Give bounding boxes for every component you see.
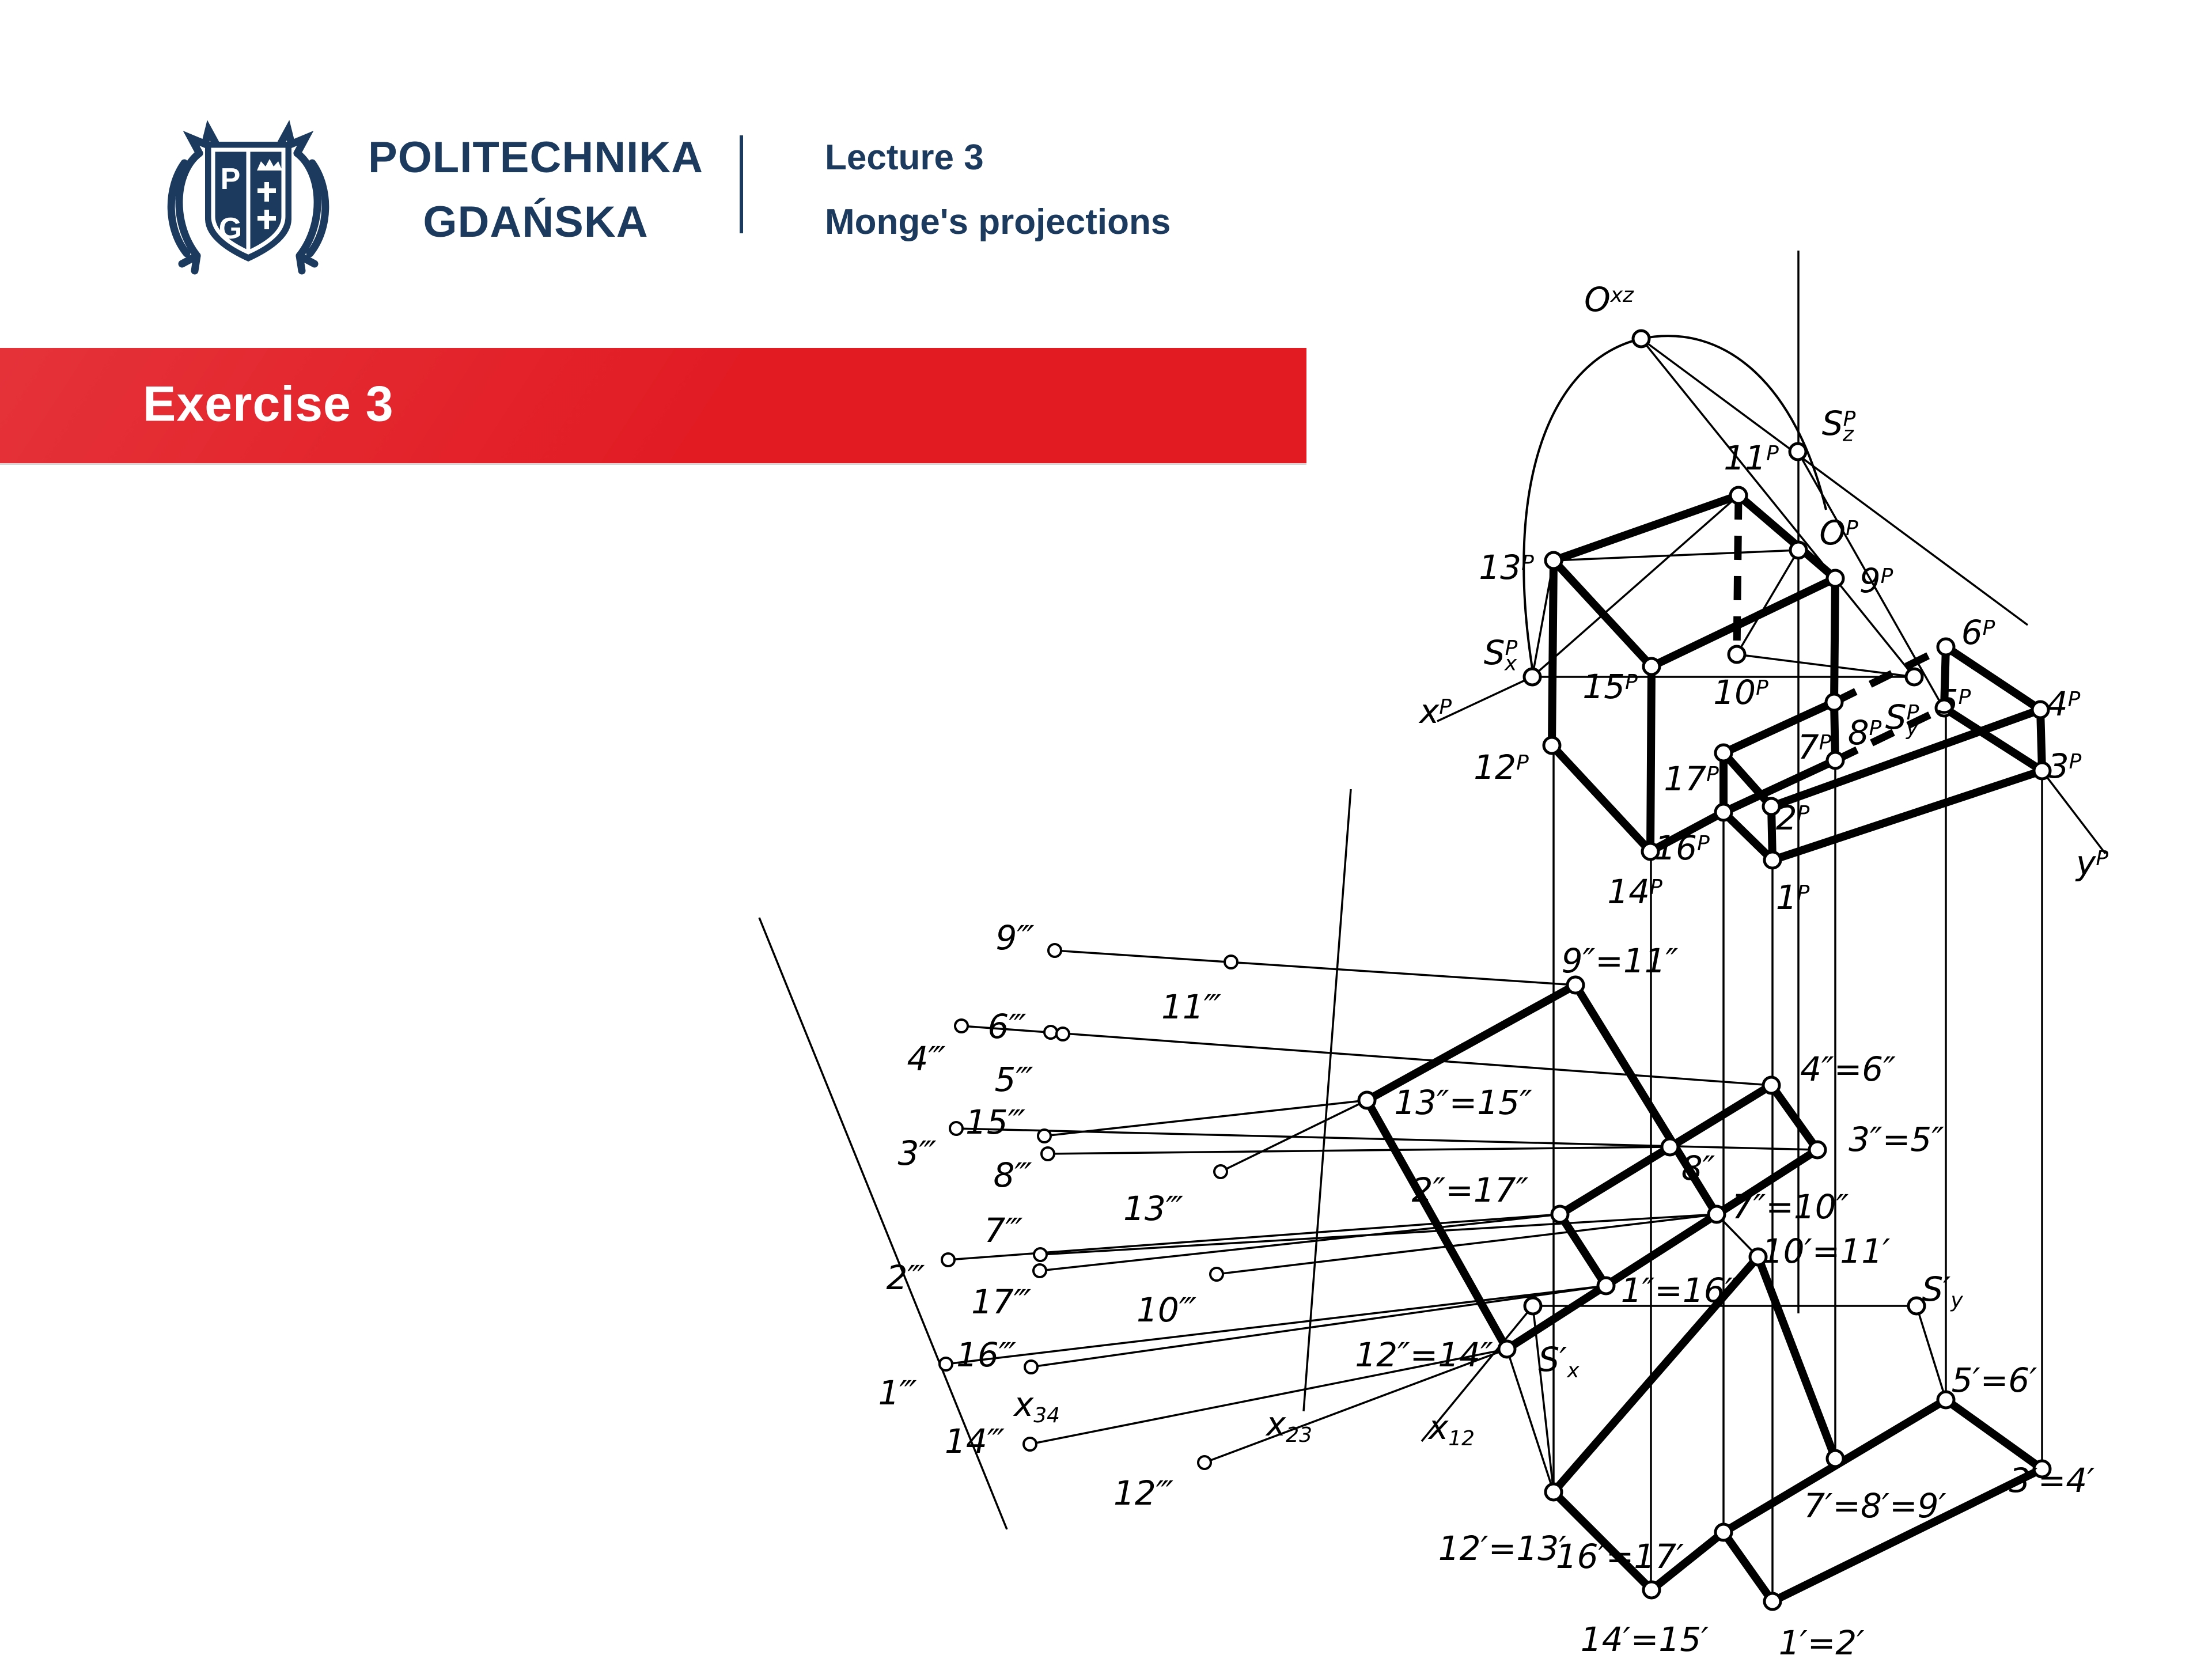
point-label: 8P <box>1848 713 1882 752</box>
vertex-point <box>1730 487 1747 503</box>
point-label: 17‴ <box>971 1282 1031 1321</box>
vertex-point <box>1764 1593 1781 1609</box>
projection-point <box>1033 1264 1046 1277</box>
point-label: 6‴ <box>987 1007 1026 1046</box>
point-label: 13‴ <box>1123 1189 1183 1228</box>
point-label: 16′=17′ <box>1556 1537 1684 1576</box>
projection-point <box>1034 1248 1047 1261</box>
point-label: 17P <box>1664 759 1719 798</box>
vertex-point <box>1552 1206 1568 1222</box>
monge-projection-drawing: OxzSPz11POP13P9P6PSPxxP15P10P8PSPy5P4P3P… <box>0 0 2212 1659</box>
point-label: xP <box>1418 692 1452 731</box>
solid-edge <box>1650 666 1652 851</box>
point-label: x34 <box>1013 1385 1060 1427</box>
point-label: 7″=10″ <box>1732 1187 1849 1226</box>
hidden-edge <box>1737 495 1738 654</box>
point-label: 1′=2′ <box>1779 1623 1865 1659</box>
point-label: 10′=11′ <box>1762 1232 1891 1271</box>
projection-point <box>1214 1165 1227 1178</box>
projection-point <box>1038 1130 1051 1142</box>
point-label: 12′=13′ <box>1438 1529 1567 1568</box>
projection-point <box>1198 1456 1211 1469</box>
solid-edge <box>1758 1257 1835 1459</box>
solid-edge <box>1724 1532 1772 1601</box>
solid-edge <box>1771 1085 1817 1150</box>
point-label: 15P <box>1582 667 1638 706</box>
projection-point <box>1025 1361 1037 1373</box>
vertex-point <box>1827 752 1843 768</box>
projection-point <box>1041 1147 1054 1160</box>
vertex-point <box>1790 444 1806 460</box>
construction-line <box>1916 1306 1946 1400</box>
construction-line <box>1031 1286 1606 1367</box>
projection-point <box>955 1020 968 1032</box>
point-label: 14P <box>1607 872 1662 911</box>
projection-point <box>1024 1438 1036 1450</box>
projection-point <box>942 1253 955 1266</box>
solid-edge <box>1772 771 2042 860</box>
point-label: 11P <box>1724 438 1779 478</box>
point-label: 1″=16″ <box>1621 1271 1738 1310</box>
slide-root: P G POLITECHNIKA GDAŃSKA Lecture 3 Monge… <box>0 0 2212 1659</box>
point-label: 1‴ <box>878 1373 916 1412</box>
point-label: 10‴ <box>1137 1290 1196 1330</box>
vertex-point <box>1643 658 1660 675</box>
point-label: 9″=11″ <box>1562 941 1679 980</box>
construction-line <box>1055 950 1575 985</box>
vertex-point <box>1764 852 1781 868</box>
point-label: 3′=4′ <box>2009 1461 2095 1500</box>
vertex-point <box>1938 639 1954 655</box>
solid-edge <box>1724 812 1772 860</box>
point-label: 9‴ <box>995 918 1034 957</box>
vertex-point <box>1709 1206 1725 1222</box>
point-label: 3″=5″ <box>1849 1120 1944 1159</box>
point-label: 9P <box>1859 561 1893 600</box>
vertex-point <box>1763 1077 1779 1093</box>
vertex-point <box>1715 1524 1732 1540</box>
point-label: 1P <box>1776 878 1810 917</box>
point-label: 4″=6″ <box>1800 1050 1896 1089</box>
point-label: 2″=17″ <box>1412 1171 1529 1210</box>
point-label: 3‴ <box>897 1134 936 1173</box>
vertex-point <box>1499 1341 1515 1357</box>
point-label: 15‴ <box>965 1103 1025 1142</box>
point-label: 13P <box>1479 548 1534 587</box>
construction-line <box>961 1026 1771 1085</box>
vertex-point <box>1598 1278 1614 1294</box>
solid-edge <box>1552 745 1650 851</box>
point-label: SPy <box>1885 698 1919 740</box>
projection-point <box>1225 956 1237 968</box>
construction-line <box>1048 1147 1670 1154</box>
vertex-point <box>1715 745 1732 761</box>
projection-point <box>950 1122 963 1135</box>
point-label: 2P <box>1776 798 1810 838</box>
point-label: SPz <box>1822 404 1856 446</box>
point-label: 16‴ <box>956 1335 1016 1374</box>
point-label: 2‴ <box>886 1258 925 1297</box>
point-label: 4P <box>2047 684 2081 724</box>
point-label: 10P <box>1713 673 1768 712</box>
point-label: 14‴ <box>945 1422 1005 1461</box>
vertex-point <box>1633 331 1649 347</box>
vertex-point <box>1809 1142 1825 1158</box>
vertex-point <box>1790 542 1806 558</box>
vertex-point <box>1715 804 1732 820</box>
vertex-point <box>1546 552 1562 569</box>
point-label: 4‴ <box>907 1039 945 1078</box>
point-label: 7′=8′=9′ <box>1804 1486 1946 1525</box>
point-label: 8″ <box>1681 1149 1715 1188</box>
vertex-point <box>1827 570 1843 586</box>
vertex-point <box>1729 646 1745 662</box>
projection-point <box>1044 1026 1057 1039</box>
point-label: S′y <box>1922 1270 1963 1312</box>
point-label: 11‴ <box>1161 987 1221 1027</box>
point-label: 5‴ <box>994 1060 1033 1099</box>
point-label: 5′=6′ <box>1952 1361 2037 1400</box>
point-label: 13″=15″ <box>1394 1083 1532 1122</box>
vertex-point <box>1525 1298 1541 1314</box>
vertex-point <box>1643 1582 1660 1598</box>
solid-edge <box>1552 560 1554 745</box>
point-label: 12‴ <box>1113 1474 1173 1513</box>
projection-point <box>1056 1028 1069 1040</box>
vertex-point <box>1546 1484 1562 1500</box>
point-label: SPx <box>1484 633 1518 675</box>
point-label: 12P <box>1474 748 1529 787</box>
point-label: 7‴ <box>984 1211 1022 1250</box>
solid-edge <box>1946 1400 2042 1469</box>
projection-point <box>1048 944 1061 957</box>
construction-arc <box>1524 336 1826 668</box>
point-label: 3P <box>2048 747 2082 786</box>
point-label: 6P <box>1961 613 1995 652</box>
solid-edge <box>1560 1214 1606 1286</box>
point-label: 8‴ <box>993 1156 1032 1195</box>
vertex-point <box>1827 1450 1843 1467</box>
point-label: x23 <box>1265 1404 1312 1447</box>
point-label: yP <box>2075 843 2108 882</box>
vertex-point <box>1662 1139 1678 1155</box>
solid-edge <box>1554 560 1652 666</box>
solid-edge <box>1834 578 1835 702</box>
vertex-point <box>1524 669 1540 685</box>
point-label: S′x <box>1538 1340 1580 1382</box>
construction-line <box>1044 1100 1367 1136</box>
projection-point <box>1210 1268 1223 1281</box>
point-label: 16P <box>1654 828 1710 868</box>
point-label: Oxz <box>1584 280 1634 319</box>
projection-point <box>940 1358 952 1370</box>
point-label: 12″=14″ <box>1355 1335 1493 1374</box>
vertex-point <box>1826 694 1842 710</box>
point-label: 14′=15′ <box>1581 1620 1709 1659</box>
vertex-point <box>1359 1092 1375 1108</box>
construction-line <box>1641 339 1914 677</box>
solid-edge <box>1554 495 1738 560</box>
vertex-point <box>1544 737 1560 753</box>
hidden-edge <box>1834 647 1946 702</box>
vertex-point <box>1906 669 1922 685</box>
point-label: 5P <box>1937 682 1971 721</box>
point-label: x12 <box>1427 1408 1475 1450</box>
